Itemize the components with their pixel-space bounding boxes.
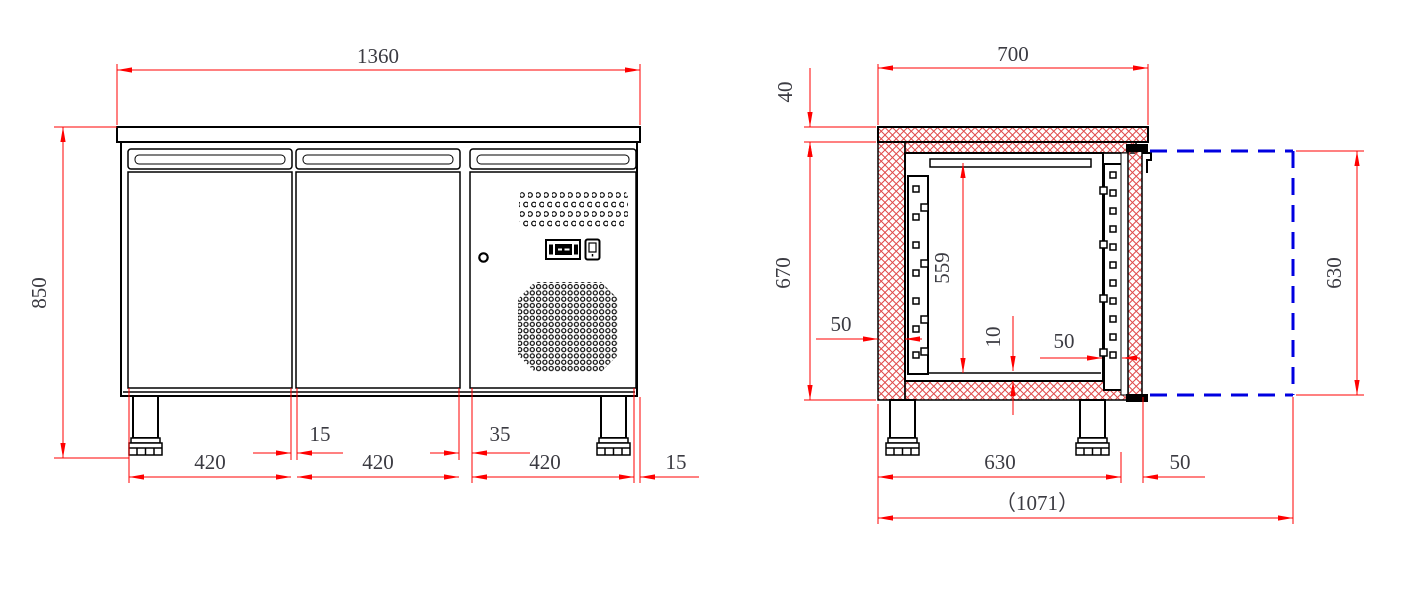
dim-height-850: [54, 127, 129, 458]
adjustable-foot: [886, 438, 919, 455]
dim-label-door2: 420: [362, 450, 394, 474]
dim-label-depth-top: 700: [997, 42, 1029, 66]
dim-label-door-thickness: 50: [1170, 450, 1191, 474]
front-view: [117, 127, 640, 455]
hinge-bottom: [1126, 394, 1148, 402]
dim-width-1360: [117, 64, 640, 125]
door-gasket: [1121, 153, 1128, 395]
side-view: [878, 127, 1151, 455]
dim-worktop-40: [804, 68, 876, 164]
dim-label-door3: 420: [529, 450, 561, 474]
dim-label-body-depth: 630: [984, 450, 1016, 474]
back-wall-insulation: [878, 142, 905, 400]
vent-grille: [519, 189, 628, 227]
worktop-front: [117, 127, 640, 142]
dim-body-height-670: [804, 142, 876, 400]
technical-drawing-canvas: 1360 850 420 15 420 35 420 15 700 40 670…: [0, 0, 1423, 613]
door-open-swing-outline: [1150, 151, 1293, 395]
dim-depth-700: [878, 64, 1148, 125]
dim-label-wall-thickness: 50: [831, 312, 852, 336]
worktop-section: [878, 127, 1148, 142]
leg-side-rear: [890, 400, 915, 438]
top-insulation: [905, 142, 1136, 153]
evaporator-hanger-bar: [930, 159, 1091, 167]
dim-label-door1: 420: [194, 450, 226, 474]
drawing-svg: 1360 850 420 15 420 35 420 15 700 40 670…: [0, 0, 1423, 613]
bottom-insulation: [905, 381, 1128, 400]
shelf-rail-front: [1100, 164, 1122, 390]
shelf-rail-rear: [908, 176, 928, 374]
dim-label-rail-gap: 50: [1054, 329, 1075, 353]
adjustable-foot: [597, 438, 630, 455]
door-edge-step: [1142, 153, 1151, 173]
dim-label-gap1: 15: [310, 422, 331, 446]
fan-grille: [518, 282, 618, 372]
leg-front-right: [601, 396, 626, 438]
dim-label-door-open-height: 630: [1322, 257, 1346, 289]
adjustable-foot: [1076, 438, 1109, 455]
hinge-top: [1126, 144, 1148, 152]
adjustable-foot: [129, 438, 162, 455]
dim-label-edge-offset: 15: [666, 450, 687, 474]
dim-label-height-total: 850: [27, 277, 51, 309]
door-section: [1121, 144, 1151, 402]
dim-label-gap2: 35: [490, 422, 511, 446]
leg-side-front: [1080, 400, 1105, 438]
dim-label-body-height: 670: [771, 257, 795, 289]
dim-label-total-depth-open: （1071）: [995, 491, 1079, 515]
leg-front-left: [133, 396, 158, 438]
dim-label-worktop-thickness: 40: [773, 82, 797, 103]
dim-label-interior-height: 559: [930, 252, 954, 284]
door-insulation: [1128, 150, 1142, 398]
dim-label-floor-plate: 10: [981, 327, 1005, 348]
dim-label-width-total: 1360: [357, 44, 399, 68]
